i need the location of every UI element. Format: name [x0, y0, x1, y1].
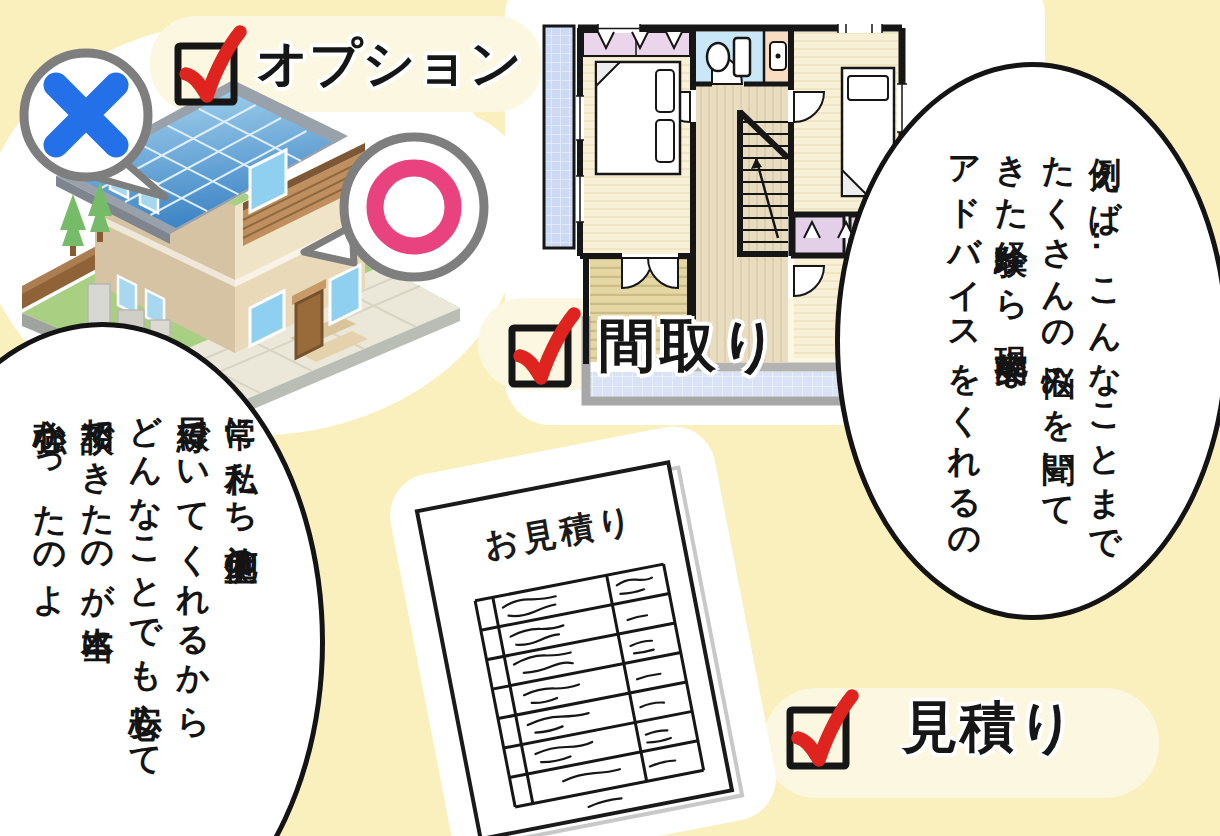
speech-line: 心強かったのよ — [26, 392, 74, 832]
speech-line: どんなことでも安心して — [121, 392, 169, 832]
checklist-item-estimate: 見積り — [782, 686, 1077, 768]
checklist-item-option: オプション — [170, 22, 522, 104]
checkbox-floorplan[interactable] — [504, 304, 580, 386]
speech-line: アドバイスをくれるの — [941, 132, 988, 572]
checkbox-option[interactable] — [170, 22, 246, 104]
check-label-estimate: 見積り — [902, 699, 1077, 755]
sink-icon — [770, 42, 786, 70]
double-bed — [596, 62, 680, 174]
balcony-side — [544, 26, 574, 248]
check-label-option: オプション — [256, 37, 522, 89]
speech-line: 相談できたのが本当に — [74, 392, 122, 832]
front-door — [296, 291, 322, 358]
speech-bubble-left-text: 常に私たち施主側の 目線でいてくれるから どんなことでも安心して 相談できたのが… — [19, 392, 265, 832]
estimate-document-illustration — [383, 419, 783, 836]
speech-bubble-right-text: 例えば…こんなことまで たくさんの悩みを聞いて きた経験から 現実的な アドバイ… — [932, 132, 1128, 572]
check-label-floorplan: 間取り — [598, 317, 782, 374]
checklist-item-floorplan: 間取り — [504, 304, 782, 386]
speech-line: 例えば…こんなことまで — [1081, 132, 1128, 572]
speech-line: 目線でいてくれるから — [169, 392, 217, 832]
stairs — [740, 110, 788, 254]
comic-panel: お見積り 例えば…こんなことまで たくさんの悩みを聞いて きた経験から 現実的な… — [0, 0, 1220, 836]
speech-line: たくさんの悩みを聞いて — [1034, 132, 1081, 572]
speech-line: 常に私たち施主側の — [217, 392, 265, 832]
checkbox-estimate[interactable] — [782, 686, 858, 768]
speech-line: きた経験から 現実的な — [987, 132, 1034, 572]
